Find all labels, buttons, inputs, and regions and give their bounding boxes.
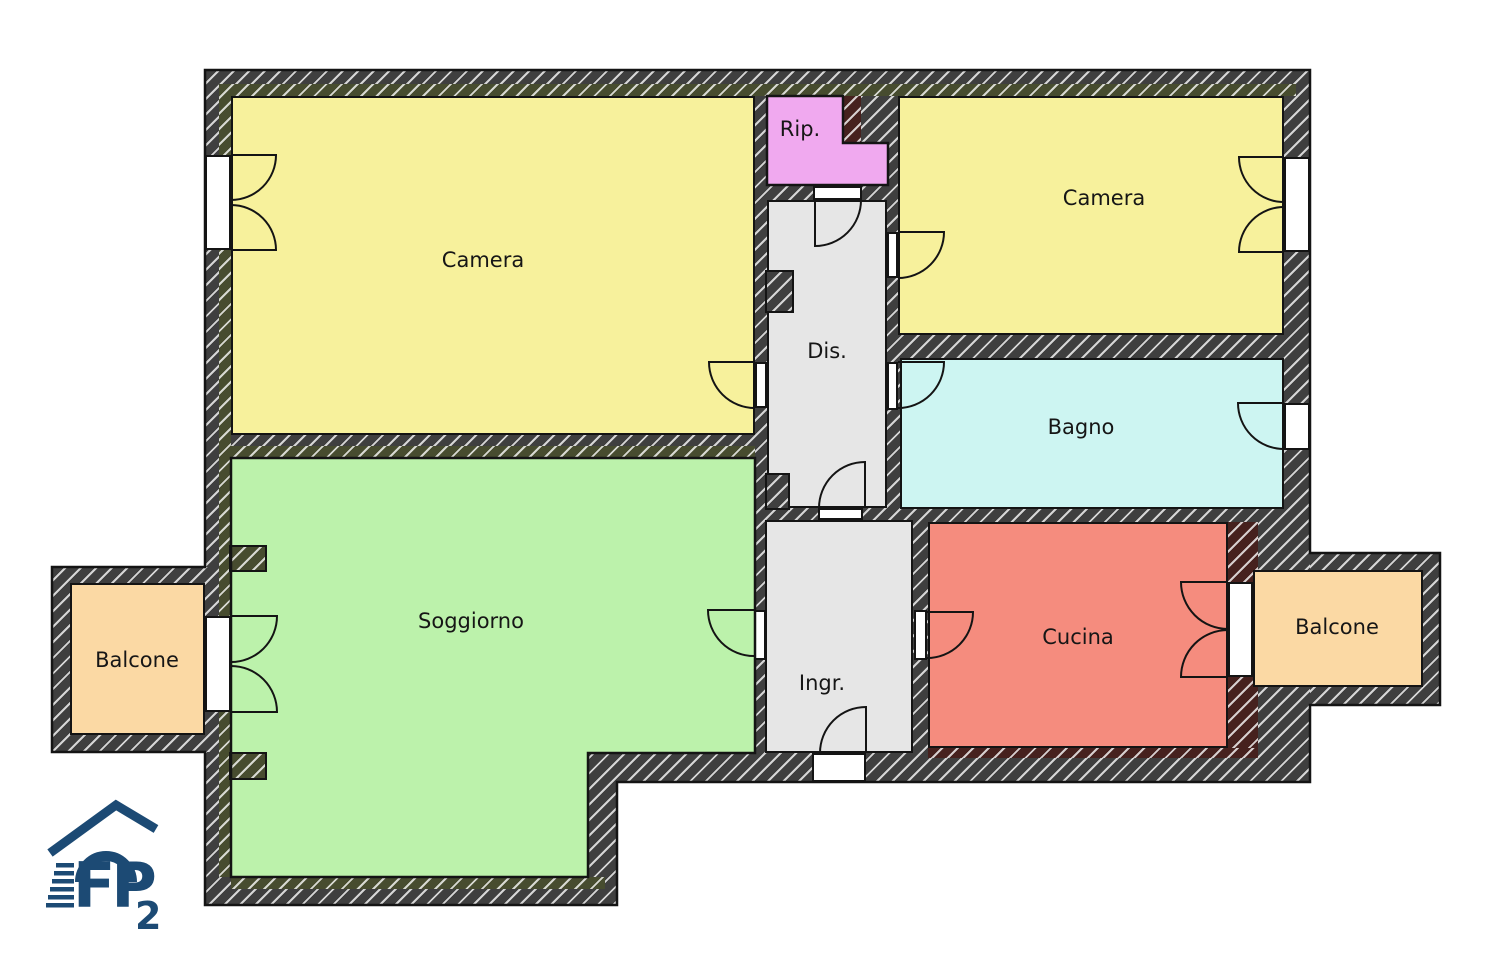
floor-plan: Camera Rip. Camera Dis. Bagno Soggiorno … bbox=[0, 0, 1500, 967]
door-arc-dis-camera-left bbox=[709, 362, 755, 408]
label-cucina: Cucina bbox=[1042, 625, 1114, 649]
label-camera-left: Camera bbox=[442, 248, 524, 272]
label-soggiorno: Soggiorno bbox=[418, 609, 524, 633]
door-arc-ingresso-soggiorno bbox=[708, 610, 754, 656]
door-arc-dis-camera-right bbox=[898, 232, 944, 278]
window-arc-bagno bbox=[1238, 403, 1284, 449]
door-arc-rip-dis bbox=[815, 200, 861, 246]
logo-stripes bbox=[46, 863, 74, 908]
label-balcone-left: Balcone bbox=[95, 648, 179, 672]
door-arc-dis-bagno bbox=[898, 362, 944, 408]
building-outline bbox=[52, 70, 1440, 905]
label-camera-right: Camera bbox=[1063, 186, 1145, 210]
logo-sub: 2 bbox=[135, 894, 161, 938]
label-dis: Dis. bbox=[807, 339, 847, 363]
fp2-logo: FP 2 bbox=[42, 786, 192, 938]
door-arc-dis-ingresso bbox=[819, 462, 865, 508]
window-arc-camera-left bbox=[231, 155, 276, 250]
door-arc-ingresso-cucina bbox=[927, 612, 973, 658]
plan-linework bbox=[0, 0, 1500, 967]
logo-roof bbox=[50, 805, 156, 853]
window-arc-camera-right bbox=[1239, 157, 1284, 252]
label-bagno: Bagno bbox=[1048, 415, 1115, 439]
label-rip: Rip. bbox=[780, 117, 820, 141]
door-arc-entrance bbox=[820, 707, 866, 753]
soggiorno-outline bbox=[231, 458, 755, 877]
door-arc-cucina-balcony bbox=[1181, 582, 1228, 677]
label-balcone-right: Balcone bbox=[1295, 615, 1379, 639]
label-ingresso: Ingr. bbox=[799, 671, 845, 695]
door-arc-soggiorno-balcony bbox=[231, 616, 277, 712]
